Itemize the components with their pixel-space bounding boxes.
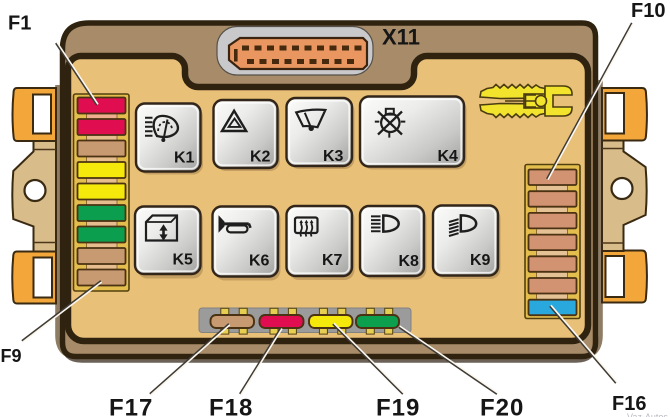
svg-text:F9: F9 <box>1 346 22 366</box>
svg-text:F1: F1 <box>8 13 31 35</box>
svg-text:X11: X11 <box>382 25 420 50</box>
svg-text:F17: F17 <box>109 395 153 417</box>
svg-text:K6: K6 <box>249 253 270 270</box>
svg-text:K7: K7 <box>322 252 343 269</box>
svg-text:F19: F19 <box>376 395 420 417</box>
svg-text:K8: K8 <box>399 253 420 270</box>
svg-text:Vaz-Autos.ru: Vaz-Autos.ru <box>627 412 670 417</box>
svg-text:K1: K1 <box>174 150 195 167</box>
svg-text:K4: K4 <box>438 148 459 165</box>
svg-text:K2: K2 <box>250 149 271 166</box>
svg-text:K5: K5 <box>173 252 194 269</box>
svg-text:F10: F10 <box>631 0 665 22</box>
svg-text:F20: F20 <box>480 395 524 417</box>
svg-text:F18: F18 <box>209 395 253 417</box>
svg-text:K9: K9 <box>470 252 491 269</box>
